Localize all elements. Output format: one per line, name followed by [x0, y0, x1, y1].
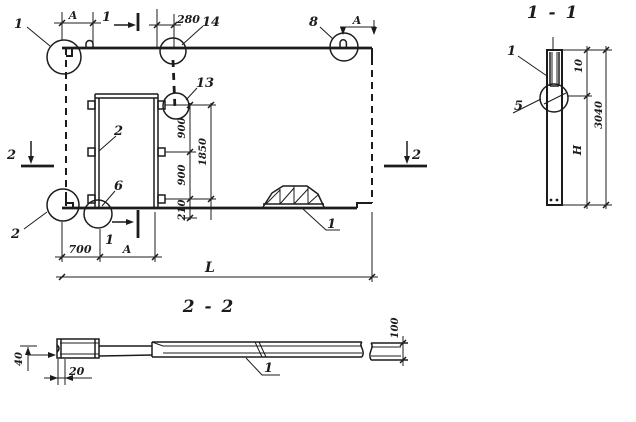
dim-label: 20: [68, 365, 85, 378]
dim-opening-vertical: 900 900 1850 210: [166, 102, 216, 221]
dim-a-top-left: A: [54, 9, 101, 47]
callout-loop-8: 8: [309, 15, 333, 39]
dim-label: 40: [14, 352, 25, 366]
callout-label: 14: [202, 15, 220, 30]
section-label: 1: [102, 10, 111, 25]
dim-label: 3040: [594, 101, 605, 129]
section-mark-2-left: 2: [6, 141, 54, 166]
dim-left-lip: 40: [14, 346, 56, 371]
channel-detail: [550, 52, 559, 86]
callout-label: 6: [114, 179, 123, 194]
dim-label: A: [122, 243, 132, 256]
dim-label: 900: [177, 165, 188, 186]
callout-panel-1-section22: 1: [246, 358, 280, 376]
section-mark-2-right: 2: [384, 141, 427, 166]
dims-section-1-1: 10 H 3040: [562, 46, 612, 209]
callout-label: 5: [514, 99, 523, 114]
section-label: 1: [105, 233, 114, 248]
balloon-joint-5: [540, 84, 568, 112]
dim-label: 1850: [198, 138, 209, 166]
balloon-corner-top-left: [47, 40, 81, 74]
panel-body: [152, 342, 363, 357]
dim-label: 100: [390, 318, 401, 339]
dim-label: 900: [177, 118, 188, 139]
callout-label: 8: [309, 15, 318, 30]
section-label: 2: [6, 148, 16, 163]
plan-bottom-left-step: [66, 198, 73, 208]
drawing-sheet: 1 1 2 2 1 14: [0, 0, 636, 422]
dim-label: 210: [177, 200, 188, 222]
plan-view: 1 1 2 2 1 14: [6, 9, 427, 282]
dim-label: 10: [574, 59, 585, 73]
dim-label: 280: [176, 13, 200, 26]
balloon-corner-bottom-left: [47, 189, 79, 221]
door-opening: [95, 94, 158, 207]
dim-label: L: [204, 260, 215, 276]
section-2-2: 2 - 2: [14, 297, 408, 385]
dim-a-top-right: A: [340, 14, 377, 35]
dim-label: A: [68, 9, 78, 22]
left-rib-block: [57, 339, 99, 358]
callout-label: 1: [14, 17, 23, 32]
hidden-embed-line: [173, 60, 175, 110]
callout-panel-1: 1: [507, 44, 547, 76]
callout-label: 1: [507, 44, 516, 59]
rebar-dot: [550, 199, 553, 202]
web-bottom: [99, 355, 152, 356]
callout-corner-bottom-left-2: 2: [10, 212, 47, 242]
callout-label: 2: [10, 227, 20, 242]
callout-joint-5: 5: [513, 99, 541, 114]
panel-end-piece: [370, 343, 408, 360]
dim-280: 280: [149, 9, 200, 47]
callout-corner-top-left: 1: [14, 17, 50, 46]
dim-label: A: [352, 14, 362, 27]
section-1-1-title: 1 - 1: [527, 3, 580, 23]
section-mark-1-bottom: 1: [105, 210, 138, 248]
callout-embed-6: 6: [102, 179, 123, 206]
section-2-2-title: 2 - 2: [182, 297, 236, 317]
dim-label: 700: [69, 243, 92, 256]
section-label: 2: [411, 148, 421, 163]
anchor-tabs: [88, 101, 172, 203]
drawing-canvas: 1 1 2 2 1 14: [0, 0, 636, 422]
callout-label: 13: [196, 76, 214, 91]
balloon-embed-6: [84, 200, 112, 228]
callout-label: 2: [113, 124, 123, 139]
balloon-embed-13: [163, 93, 189, 119]
section-1-1: 1 - 1 1 5 10: [507, 3, 612, 209]
plan-bottom-right-notch: [357, 203, 372, 208]
callout-label: 1: [264, 361, 273, 376]
callout-strongback-1: 1: [303, 209, 340, 232]
callout-opening-side-2: 2: [99, 124, 123, 151]
strongback-detail: [263, 186, 324, 207]
rebar-dot: [556, 199, 559, 202]
dim-offset-20: 20: [44, 359, 92, 385]
callout-label: 1: [327, 217, 336, 232]
section-mark-1-top: 1: [102, 10, 138, 31]
callout-embed-13: 13: [186, 76, 214, 100]
dim-thickness: 100: [390, 318, 406, 366]
dim-label: H: [571, 144, 584, 156]
